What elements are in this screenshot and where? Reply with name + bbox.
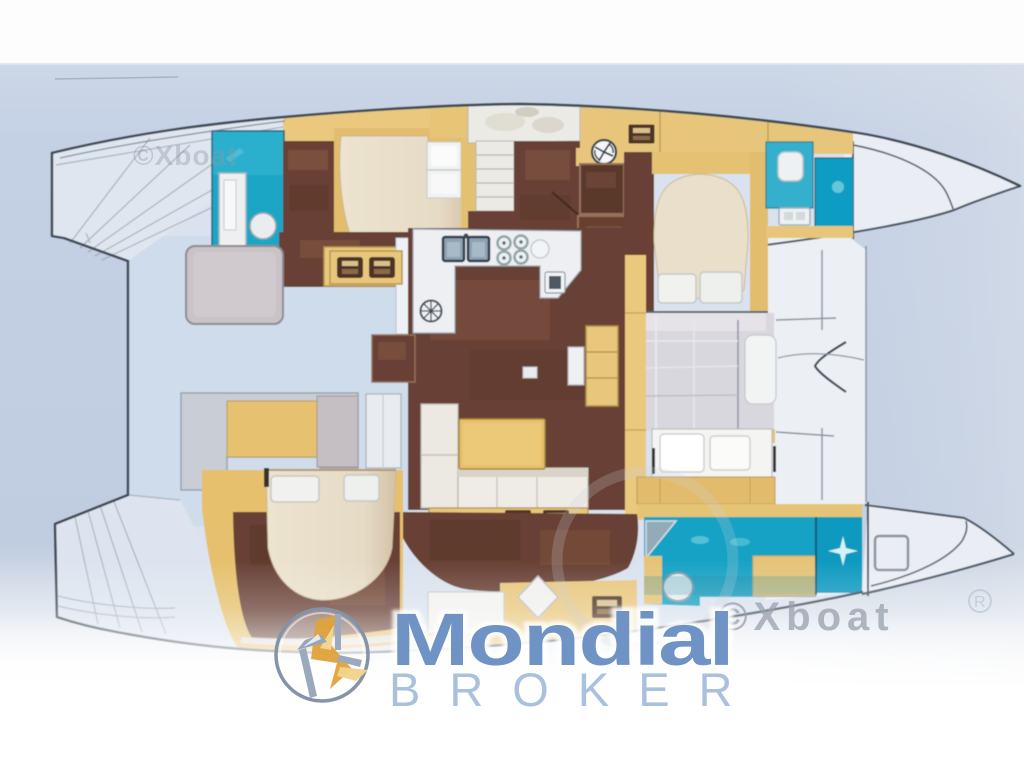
svg-text:©Xboat: ©Xboat (133, 140, 237, 171)
svg-text:R: R (974, 594, 986, 611)
svg-text:BROKER: BROKER (389, 663, 762, 716)
svg-text:©Xboat: ©Xboat (718, 595, 895, 639)
